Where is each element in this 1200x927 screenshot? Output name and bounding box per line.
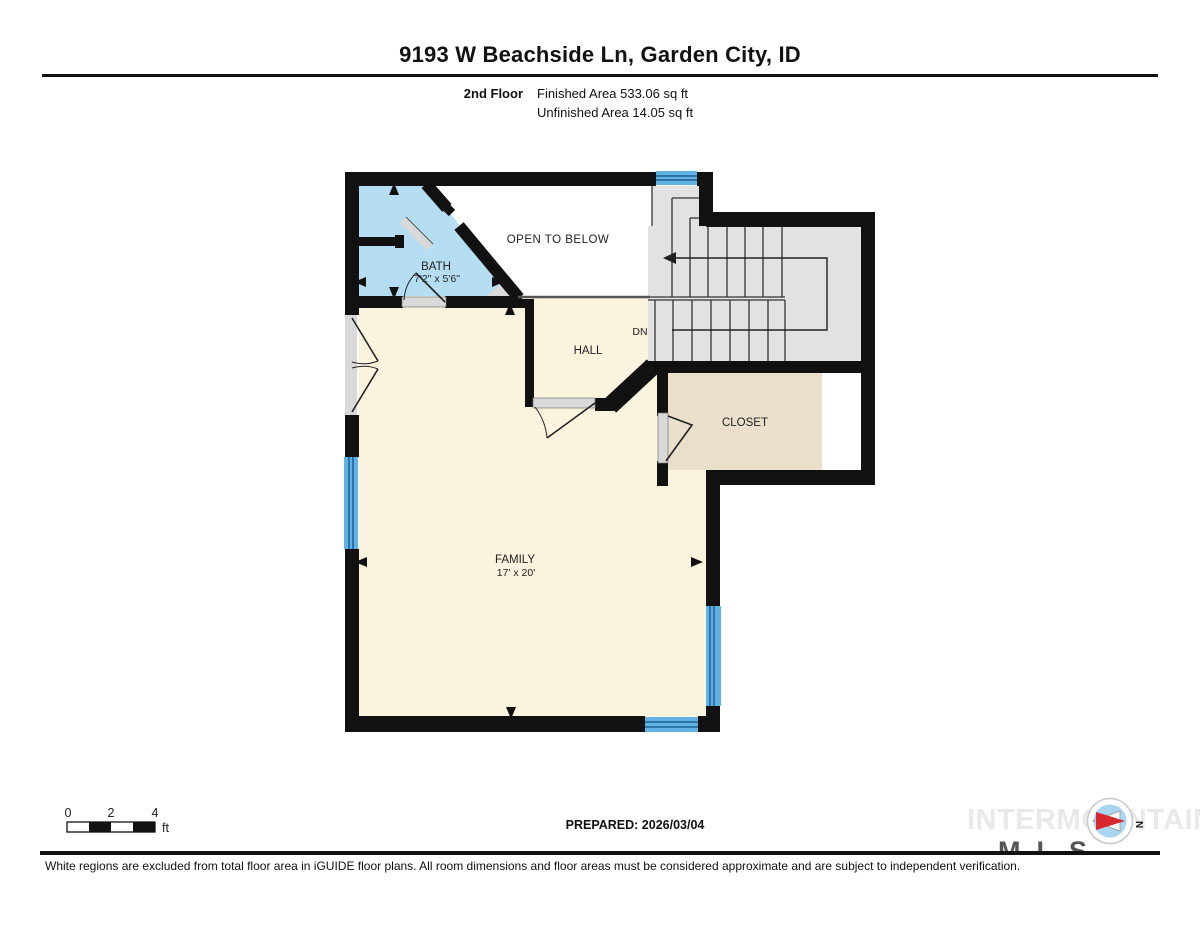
wall-plane-fragment	[487, 281, 519, 296]
footer-rule	[40, 851, 1160, 855]
scale-tick-4: 4	[152, 806, 159, 820]
window-top	[656, 171, 697, 185]
bath-label: BATH	[421, 261, 451, 273]
room-fills	[359, 186, 706, 716]
floor-info: 2nd Floor Finished Area 533.06 sq ft Unf…	[420, 84, 693, 122]
bath-dim-arrow-down	[389, 287, 399, 299]
family-dim-arrow-left	[355, 557, 367, 567]
stair-main-block	[648, 226, 861, 362]
scale-tick-2: 2	[108, 806, 115, 820]
closet-room	[668, 373, 822, 470]
bath-dims-label: 7'2" x 5'6"	[414, 273, 460, 285]
disclaimer-text: White regions are excluded from total fl…	[45, 859, 1165, 873]
header-rule	[42, 74, 1158, 77]
watermark-text: INTERMOUNTAIN	[967, 804, 1200, 837]
windows	[344, 171, 721, 732]
stair-upper-strip	[652, 186, 699, 227]
family-left-double-door	[345, 315, 378, 415]
page-title: 9193 W Beachside Ln, Garden City, ID	[0, 42, 1200, 68]
family-hall-floor	[359, 296, 706, 716]
family-dim-arrow-down	[506, 707, 516, 719]
stair-direction-path	[672, 258, 827, 330]
family-dim-arrow-up	[505, 303, 515, 315]
staircase	[648, 186, 861, 362]
walls	[345, 172, 875, 732]
closet-excluded-region	[822, 373, 860, 470]
family-dim-arrow-right	[691, 557, 703, 567]
scale-tick-0: 0	[65, 806, 72, 820]
window-bottom	[645, 717, 698, 732]
bath-dim-arrow-up	[389, 183, 399, 195]
floor-plan-drawing: BATH 7'2" x 5'6" OPEN TO BELOW DN HALL C…	[0, 0, 1200, 927]
family-dims-label: 17' x 20'	[497, 567, 535, 579]
doors	[345, 217, 692, 463]
closet-bifold-door	[658, 413, 692, 463]
stair-direction-arrow-icon	[663, 252, 676, 264]
floor-plan-page: 9193 W Beachside Ln, Garden City, ID 2nd…	[0, 0, 1200, 927]
bath-dim-arrow-right	[492, 277, 504, 287]
room-labels: BATH 7'2" x 5'6" OPEN TO BELOW DN HALL C…	[414, 234, 768, 579]
bath-dim-arrow-left	[354, 277, 366, 287]
unfinished-area: Unfinished Area 14.05 sq ft	[537, 103, 693, 122]
bath-room	[359, 186, 517, 296]
hall-door	[533, 398, 595, 438]
stair-treads	[648, 186, 785, 362]
open-to-below-label: OPEN TO BELOW	[507, 234, 610, 246]
area-summary: Finished Area 533.06 sq ft Unfinished Ar…	[537, 84, 693, 122]
family-label: FAMILY	[495, 554, 535, 566]
scale-bar: 0 2 4 ft	[65, 806, 170, 835]
open-to-below-region	[436, 186, 652, 296]
bath-door	[402, 273, 446, 307]
hall-label: HALL	[574, 345, 603, 357]
watermark-sub-text: MLS	[998, 836, 1168, 851]
prepared-date: PREPARED: 2026/03/04	[520, 818, 750, 832]
scale-unit-label: ft	[162, 821, 169, 835]
window-left	[344, 457, 358, 549]
window-right	[706, 606, 721, 706]
bath-diagonal-door	[403, 217, 433, 247]
floor-label: 2nd Floor	[420, 84, 523, 122]
dimension-arrows	[354, 183, 703, 719]
stair-dn-label: DN	[632, 326, 647, 338]
finished-area: Finished Area 533.06 sq ft	[537, 84, 693, 103]
closet-label: CLOSET	[722, 417, 768, 429]
